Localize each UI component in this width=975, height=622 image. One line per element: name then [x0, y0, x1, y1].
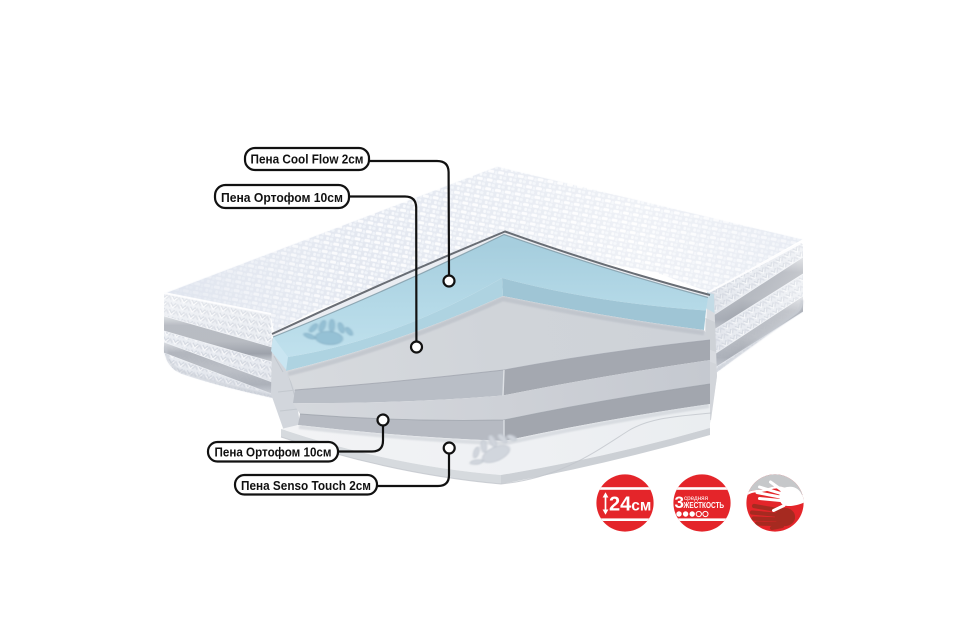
- svg-text:Пена Cool Flow 2см: Пена Cool Flow 2см: [251, 152, 364, 167]
- svg-text:24см: 24см: [609, 494, 651, 516]
- svg-text:Пена Ортофом 10см: Пена Ортофом 10см: [215, 445, 332, 460]
- svg-text:Пена Ортофом 10см: Пена Ортофом 10см: [221, 190, 343, 205]
- svg-text:Пена Senso Touch 2см: Пена Senso Touch 2см: [241, 478, 371, 493]
- svg-text:ЖЕСТКОСТЬ: ЖЕСТКОСТЬ: [683, 500, 724, 510]
